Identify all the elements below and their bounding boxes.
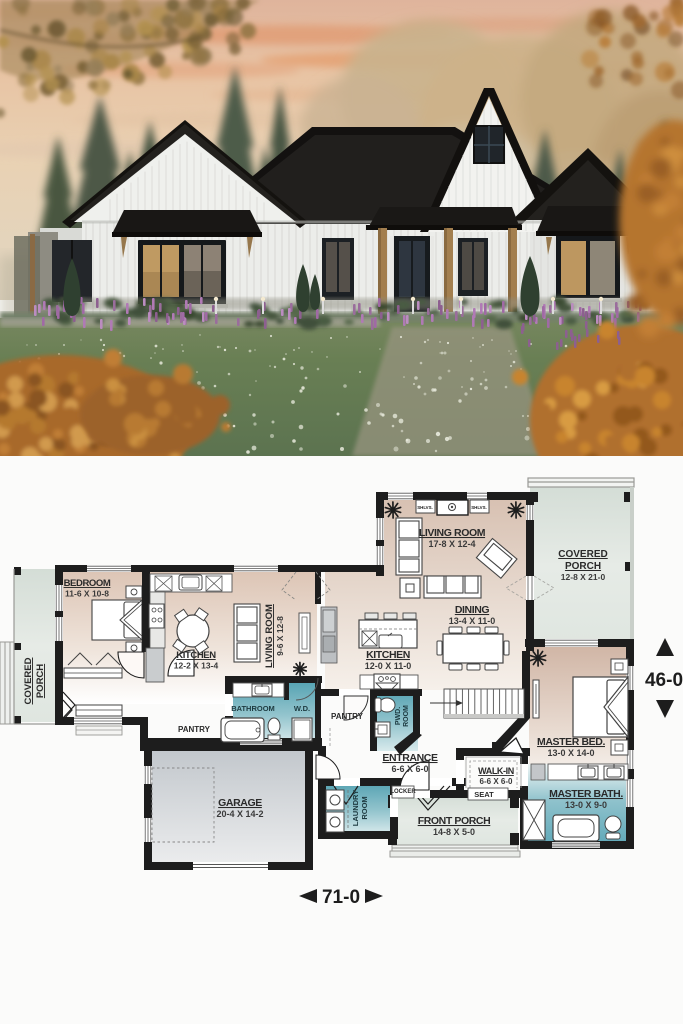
svg-text:ROOM: ROOM xyxy=(360,796,369,819)
svg-text:11-6 X 10-8: 11-6 X 10-8 xyxy=(65,589,109,599)
svg-text:9-6 X 12-8: 9-6 X 12-8 xyxy=(275,616,285,656)
svg-text:COVERED: COVERED xyxy=(558,549,607,560)
svg-text:FRONT PORCH: FRONT PORCH xyxy=(418,815,491,827)
svg-text:LIVING ROOM: LIVING ROOM xyxy=(419,527,486,539)
svg-text:MASTER BATH.: MASTER BATH. xyxy=(549,788,623,800)
svg-text:ROOM: ROOM xyxy=(403,705,410,727)
svg-text:14-8 X 5-0: 14-8 X 5-0 xyxy=(433,827,475,837)
svg-text:6-6 X 6-0: 6-6 X 6-0 xyxy=(391,764,428,774)
svg-text:KITCHEN: KITCHEN xyxy=(366,649,410,661)
svg-text:LAUNDRY: LAUNDRY xyxy=(351,790,360,826)
svg-text:12-0 X 11-0: 12-0 X 11-0 xyxy=(365,661,412,671)
svg-text:W.D.: W.D. xyxy=(294,704,310,713)
svg-text:PORCH: PORCH xyxy=(35,664,46,698)
svg-text:12-2 X 13-4: 12-2 X 13-4 xyxy=(174,661,219,671)
svg-text:LIVING ROOM: LIVING ROOM xyxy=(264,604,275,668)
svg-text:ENTRANCE: ENTRANCE xyxy=(382,752,438,764)
svg-text:17-8 X 12-4: 17-8 X 12-4 xyxy=(428,539,475,549)
svg-text:PANTRY: PANTRY xyxy=(178,725,211,734)
svg-text:13-4 X 11-0: 13-4 X 11-0 xyxy=(449,616,496,626)
svg-text:GARAGE: GARAGE xyxy=(218,797,262,809)
svg-text:PORCH: PORCH xyxy=(565,561,601,572)
svg-text:PANTRY: PANTRY xyxy=(331,712,364,721)
svg-text:SEAT: SEAT xyxy=(474,790,494,799)
svg-text:BEDROOM: BEDROOM xyxy=(64,578,111,589)
svg-text:20-4 X 14-2: 20-4 X 14-2 xyxy=(216,809,263,819)
svg-text:COVERED: COVERED xyxy=(23,657,34,704)
svg-text:46-0: 46-0 xyxy=(645,670,683,691)
svg-text:WALK-IN: WALK-IN xyxy=(478,766,514,776)
svg-text:DINING: DINING xyxy=(455,604,490,616)
svg-text:MASTER BED.: MASTER BED. xyxy=(537,736,605,748)
svg-text:SHLVS.: SHLVS. xyxy=(417,505,433,510)
svg-text:PWD.: PWD. xyxy=(395,707,402,725)
svg-text:SHLVS.: SHLVS. xyxy=(471,505,487,510)
svg-text:13-0 X 9-0: 13-0 X 9-0 xyxy=(565,800,607,810)
svg-text:LOCKER: LOCKER xyxy=(390,789,416,795)
svg-text:BATHROOM: BATHROOM xyxy=(231,704,275,713)
svg-text:KITCHEN: KITCHEN xyxy=(176,650,216,661)
svg-text:12-8 X 21-0: 12-8 X 21-0 xyxy=(561,572,606,582)
svg-text:71-0: 71-0 xyxy=(322,887,360,908)
svg-text:13-0 X 14-0: 13-0 X 14-0 xyxy=(547,748,594,758)
svg-text:6-6 X 6-0: 6-6 X 6-0 xyxy=(480,777,513,786)
